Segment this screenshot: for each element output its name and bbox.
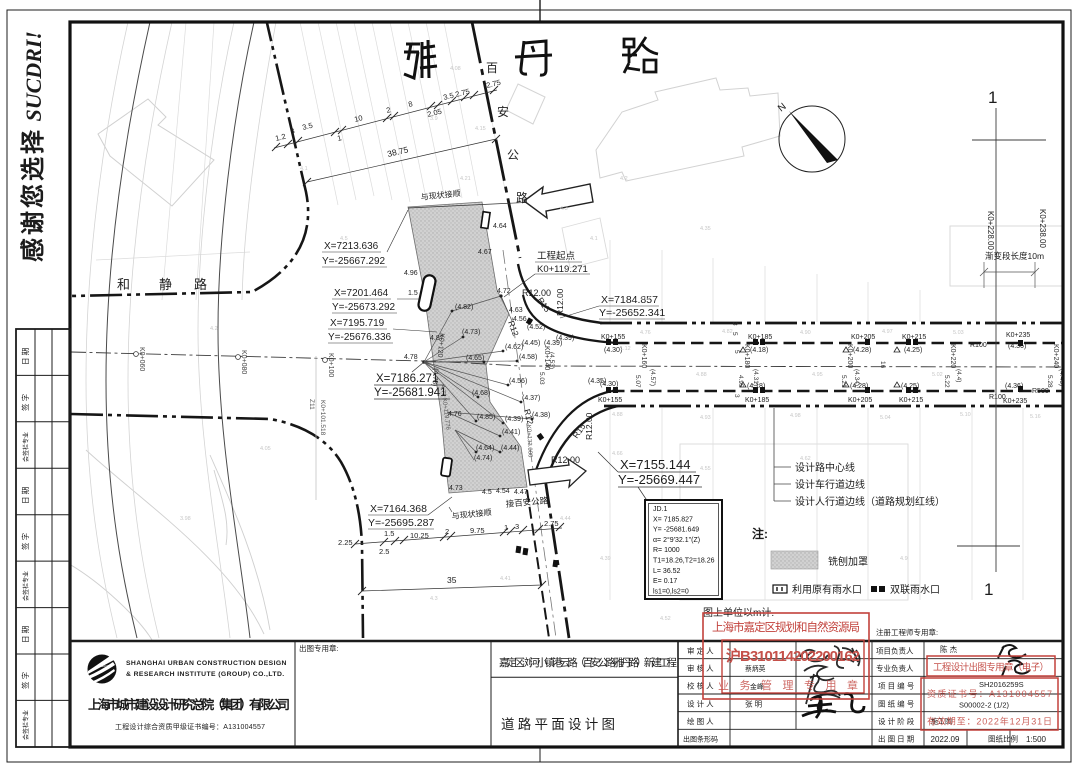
svg-text:4.62: 4.62 (800, 456, 811, 462)
svg-text:2.75: 2.75 (544, 519, 559, 528)
svg-text:5.04: 5.04 (880, 415, 891, 421)
svg-text:K0+155: K0+155 (598, 397, 622, 404)
svg-text:(4.36): (4.36) (1005, 383, 1023, 390)
svg-text:T1=18.26,T2=18.26: T1=18.26,T2=18.26 (653, 558, 715, 565)
svg-text:项 目 编 号: 项 目 编 号 (878, 681, 914, 691)
svg-text:4.76: 4.76 (640, 330, 651, 336)
svg-text:日 期: 日 期 (21, 487, 30, 504)
svg-text:(4.65): (4.65) (466, 355, 484, 362)
svg-text:Y=-25652.341: Y=-25652.341 (599, 307, 665, 319)
svg-text:校 核 人: 校 核 人 (687, 681, 714, 691)
svg-text:4.78: 4.78 (404, 354, 418, 361)
svg-text:4.44: 4.44 (560, 516, 571, 522)
svg-text:K0+100: K0+100 (327, 353, 334, 377)
svg-text:(4.34): (4.34) (853, 369, 860, 386)
svg-text:专业负责人: 专业负责人 (876, 663, 914, 673)
svg-text:(4.58): (4.58) (519, 354, 537, 361)
svg-text:SUCDRI: SUCDRI (101, 664, 113, 668)
svg-text:X=7201.464: X=7201.464 (334, 288, 389, 299)
svg-text:5.02: 5.02 (932, 372, 943, 378)
svg-text:4.95: 4.95 (812, 372, 823, 378)
svg-text:1.5: 1.5 (408, 290, 418, 297)
svg-text:5.03: 5.03 (538, 372, 545, 385)
svg-text:2: 2 (445, 527, 449, 536)
svg-text:4.15: 4.15 (475, 126, 486, 132)
svg-text:静: 静 (159, 277, 172, 292)
svg-text:5.03: 5.03 (953, 330, 964, 336)
svg-text:4.90: 4.90 (800, 330, 811, 336)
svg-text:α= 2°9'32.1"(Z): α= 2°9'32.1"(Z) (653, 536, 700, 544)
svg-text:(4.35): (4.35) (588, 378, 606, 385)
svg-text:4.2: 4.2 (620, 176, 628, 182)
svg-text:K0+205: K0+205 (848, 397, 872, 404)
svg-text:SHANGHAI URBAN CONSTRUCTION DE: SHANGHAI URBAN CONSTRUCTION DESIGN (126, 660, 287, 667)
svg-text:R= 1000: R= 1000 (653, 547, 680, 554)
svg-text:E= 0.17: E= 0.17 (653, 578, 677, 585)
svg-text:2022.09: 2022.09 (931, 735, 960, 744)
svg-text:4.3: 4.3 (430, 596, 438, 602)
svg-text:嘉定区浏河小镇港云路（百安公路-雅丹路）新建工程: 嘉定区浏河小镇港云路（百安公路-雅丹路）新建工程 (499, 656, 678, 669)
svg-text:4.54: 4.54 (496, 488, 510, 495)
svg-text:注册工程师专用章:: 注册工程师专用章: (876, 627, 938, 637)
svg-text:4.2: 4.2 (210, 326, 218, 332)
svg-text:安: 安 (497, 104, 509, 119)
svg-text:R12.00: R12.00 (522, 288, 551, 298)
svg-text:Y=-25681.941: Y=-25681.941 (374, 387, 447, 399)
svg-text:K0+228.00: K0+228.00 (986, 211, 995, 250)
svg-text:绘 图 人: 绘 图 人 (687, 716, 714, 726)
svg-text:(4.52): (4.52) (527, 324, 545, 331)
svg-text:X= 7185.827: X= 7185.827 (653, 516, 693, 523)
svg-text:(4.45): (4.45) (522, 340, 540, 347)
svg-text:工程起点: 工程起点 (537, 251, 576, 262)
svg-text:K0+235: K0+235 (1003, 398, 1027, 405)
svg-text:K0+101.518: K0+101.518 (319, 400, 326, 436)
svg-text:(4.64): (4.64) (476, 445, 494, 452)
svg-text:4.76: 4.76 (448, 411, 462, 418)
svg-text:1: 1 (984, 580, 993, 599)
svg-text:(4.37): (4.37) (522, 395, 540, 402)
svg-text:K0+200: K0+200 (846, 344, 853, 368)
svg-text:4.88: 4.88 (612, 412, 623, 418)
svg-text:日 期: 日 期 (21, 626, 30, 643)
svg-text:有效期至：2022年12月31日: 有效期至：2022年12月31日 (927, 716, 1052, 727)
svg-text:K0+180: K0+180 (743, 344, 750, 368)
svg-text:渐变段长度10m: 渐变段长度10m (985, 251, 1044, 261)
svg-text:4.64: 4.64 (493, 223, 507, 230)
svg-text:5.21: 5.21 (840, 375, 847, 388)
svg-text:注:: 注: (752, 526, 768, 541)
svg-text:Y=-25669.447: Y=-25669.447 (618, 472, 700, 487)
svg-text:4.05: 4.05 (260, 446, 271, 452)
svg-text:X=7186.271: X=7186.271 (376, 373, 438, 385)
svg-text:1: 1 (988, 88, 997, 107)
svg-text:K0+185: K0+185 (745, 397, 769, 404)
svg-text:35: 35 (447, 575, 457, 585)
svg-text:5.22: 5.22 (943, 375, 950, 388)
svg-text:(4.62): (4.62) (505, 344, 523, 351)
svg-text:X=7155.144: X=7155.144 (620, 457, 690, 472)
svg-text:3.98: 3.98 (180, 516, 191, 522)
svg-text:K0+235: K0+235 (1006, 332, 1030, 339)
svg-text:X=7164.368: X=7164.368 (370, 503, 427, 515)
svg-text:(4.44): (4.44) (501, 445, 519, 452)
svg-text:4.95: 4.95 (737, 375, 744, 388)
svg-text:(4.4): (4.4) (955, 369, 962, 382)
svg-text:4.47: 4.47 (514, 489, 528, 496)
svg-text:Y= -25681.649: Y= -25681.649 (653, 527, 699, 534)
svg-text:3.9: 3.9 (430, 116, 438, 122)
svg-text:出图条形码: 出图条形码 (683, 735, 718, 744)
svg-text:上海市嘉定区规划和自然资源局: 上海市嘉定区规划和自然资源局 (712, 620, 860, 634)
svg-text:审 核 人: 审 核 人 (687, 663, 714, 673)
svg-text:日 期: 日 期 (21, 348, 30, 365)
svg-text:签 字: 签 字 (20, 672, 30, 689)
svg-text:会签栏专业: 会签栏专业 (22, 432, 30, 462)
svg-text:4.63: 4.63 (509, 307, 523, 314)
svg-text:4.41: 4.41 (500, 576, 511, 582)
svg-text:4.5: 4.5 (340, 236, 348, 242)
svg-text:蔡炳英: 蔡炳英 (745, 664, 766, 673)
svg-text:R12.00: R12.00 (584, 412, 594, 440)
svg-text:K0+080: K0+080 (240, 350, 247, 374)
svg-text:签 字: 签 字 (20, 394, 30, 411)
svg-text:K0+220: K0+220 (949, 344, 956, 368)
svg-text:3: 3 (515, 522, 519, 531)
svg-text:(4.73): (4.73) (462, 329, 480, 336)
svg-text:铣刨加罩: 铣刨加罩 (828, 555, 868, 568)
svg-text:R100: R100 (989, 394, 1006, 401)
svg-text:5.16: 5.16 (1030, 414, 1041, 420)
svg-text:X=7195.719: X=7195.719 (330, 318, 385, 329)
svg-text:(4.57): (4.57) (649, 369, 656, 386)
svg-text:项目负责人: 项目负责人 (876, 646, 914, 656)
svg-text:(4.56): (4.56) (509, 378, 527, 385)
svg-text:4.55: 4.55 (700, 466, 711, 472)
svg-text:路: 路 (516, 190, 528, 205)
svg-text:K0+240: K0+240 (1052, 344, 1059, 368)
svg-text:4.21: 4.21 (460, 176, 471, 182)
svg-text:1: 1 (504, 523, 508, 532)
svg-text:4.66: 4.66 (612, 451, 623, 457)
svg-text:& RESEARCH INSTITUTE (GROUP) C: & RESEARCH INSTITUTE (GROUP) CO.,LTD. (126, 671, 285, 678)
svg-text:(4.39): (4.39) (556, 335, 574, 342)
svg-text:K0+215: K0+215 (899, 397, 923, 404)
svg-text:4.98: 4.98 (790, 413, 801, 419)
svg-text:5.10: 5.10 (960, 412, 971, 418)
svg-text:(4.82): (4.82) (455, 304, 473, 311)
svg-text:(4.25): (4.25) (901, 383, 919, 390)
svg-text:K0+119.271: K0+119.271 (537, 264, 588, 275)
svg-text:陈 杰: 陈 杰 (940, 644, 958, 654)
svg-text:2.25: 2.25 (338, 538, 353, 547)
svg-text:出 图 日 期: 出 图 日 期 (878, 734, 914, 744)
svg-text:L= 36.52: L= 36.52 (653, 568, 681, 575)
svg-text:4.1: 4.1 (300, 166, 308, 172)
svg-text:4.62: 4.62 (640, 296, 651, 302)
svg-text:5.28: 5.28 (1046, 375, 1053, 388)
svg-text:K0+060: K0+060 (138, 347, 145, 371)
svg-text:K0+215: K0+215 (902, 334, 926, 341)
svg-text:双联雨水口: 双联雨水口 (890, 584, 940, 596)
svg-text:16: 16 (879, 361, 886, 369)
svg-text:K0+238.00: K0+238.00 (1038, 209, 1047, 248)
svg-text:4.9: 4.9 (900, 556, 908, 562)
svg-text:1:500: 1:500 (1026, 735, 1047, 744)
svg-text:K0+155: K0+155 (601, 334, 625, 341)
svg-text:4.3: 4.3 (560, 206, 568, 212)
svg-text:(4.36): (4.36) (1008, 343, 1026, 350)
svg-text:工程设计出图专用章（电子）: 工程设计出图专用章（电子） (933, 662, 1049, 674)
svg-text:会签栏专业: 会签栏专业 (22, 710, 30, 740)
svg-text:Y=-25695.287: Y=-25695.287 (368, 517, 434, 529)
svg-text:设计路中心线: 设计路中心线 (795, 461, 855, 474)
svg-text:设 计 阶 段: 设 计 阶 段 (878, 716, 915, 726)
svg-text:沪B310114202200162: 沪B310114202200162 (726, 647, 860, 665)
svg-text:JD.1: JD.1 (653, 506, 668, 513)
svg-text:4.1: 4.1 (590, 236, 598, 242)
svg-text:4.97: 4.97 (882, 329, 893, 335)
svg-text:上海市城市建设设计研究总院（集团）有限公司: 上海市城市建设设计研究总院（集团）有限公司 (88, 697, 290, 712)
svg-text:Z11: Z11 (308, 399, 315, 410)
svg-text:K0+205: K0+205 (851, 334, 875, 341)
svg-text:4.73: 4.73 (449, 485, 463, 492)
svg-text:4.88: 4.88 (696, 372, 707, 378)
svg-text:(4.68): (4.68) (472, 390, 490, 397)
svg-text:R100: R100 (970, 342, 987, 349)
svg-text:2.5: 2.5 (379, 547, 389, 556)
svg-text:S00002-2 (1/2): S00002-2 (1/2) (959, 701, 1010, 710)
svg-text:1.12: 1.12 (620, 346, 631, 352)
svg-text:K0+160: K0+160 (640, 344, 647, 368)
svg-text:10.25: 10.25 (410, 531, 429, 540)
svg-text:工程设计综合资质甲级证书编号：A131004557: 工程设计综合资质甲级证书编号：A131004557 (115, 722, 265, 731)
svg-text:设计人行道边线（道路规划红线）: 设计人行道边线（道路规划红线） (795, 495, 945, 508)
svg-text:5: 5 (733, 350, 740, 354)
svg-text:Y=-25673.292: Y=-25673.292 (332, 302, 396, 313)
svg-text:3: 3 (731, 322, 738, 326)
svg-text:路: 路 (194, 277, 207, 292)
svg-text:R12.00: R12.00 (555, 288, 565, 316)
svg-text:9.75: 9.75 (470, 526, 485, 535)
svg-text:4.39: 4.39 (600, 556, 611, 562)
svg-text:(4.74): (4.74) (474, 455, 492, 462)
svg-text:设计车行道边线: 设计车行道边线 (795, 478, 865, 491)
svg-text:图纸比例: 图纸比例 (988, 734, 1018, 744)
svg-text:Y=-25676.336: Y=-25676.336 (328, 332, 392, 343)
svg-text:(4.28): (4.28) (853, 347, 871, 354)
svg-text:(4.18): (4.18) (750, 347, 768, 354)
svg-text:和: 和 (117, 277, 130, 292)
svg-text:出图专用章:: 出图专用章: (299, 643, 339, 653)
svg-text:4.82: 4.82 (722, 329, 733, 335)
svg-text:Y=-25667.292: Y=-25667.292 (322, 256, 386, 267)
svg-text:设 计 人: 设 计 人 (687, 698, 714, 708)
svg-text:4.93: 4.93 (700, 415, 711, 421)
svg-text:4.35: 4.35 (700, 226, 711, 232)
svg-text:(4.25): (4.25) (904, 347, 922, 354)
svg-text:(4.31): (4.31) (752, 369, 759, 386)
svg-text:审 定 人: 审 定 人 (687, 646, 714, 656)
svg-text:道路平面设计图: 道路平面设计图 (501, 717, 615, 732)
svg-text:百: 百 (486, 61, 498, 75)
svg-text:张 明: 张 明 (745, 700, 762, 709)
svg-text:4.96: 4.96 (404, 270, 418, 277)
svg-text:(4.85): (4.85) (477, 414, 495, 421)
svg-text:X=7213.636: X=7213.636 (324, 241, 379, 252)
svg-text:4.5: 4.5 (482, 489, 492, 496)
svg-text:签 字: 签 字 (20, 533, 30, 550)
svg-text:4.08: 4.08 (450, 66, 461, 72)
svg-text:会签栏专业: 会签栏专业 (22, 571, 30, 601)
svg-text:(4.41): (4.41) (502, 429, 520, 436)
svg-text:(4.39): (4.39) (505, 416, 523, 423)
svg-text:公: 公 (507, 148, 519, 162)
svg-text:K0+185: K0+185 (748, 334, 772, 341)
svg-text:4.52: 4.52 (660, 616, 671, 622)
svg-text:(4.53): (4.53) (548, 352, 555, 369)
svg-text:R500: R500 (1032, 388, 1049, 395)
svg-text:ls1=0,ls2=0: ls1=0,ls2=0 (653, 588, 689, 595)
svg-text:SH2016259S: SH2016259S (979, 680, 1024, 689)
svg-text:感谢您选择 SUCDRI!: 感谢您选择 SUCDRI! (19, 31, 47, 262)
svg-text:4.72: 4.72 (497, 288, 511, 295)
svg-text:5.07: 5.07 (634, 375, 641, 388)
svg-text:3: 3 (733, 394, 740, 398)
svg-text:利用原有雨水口: 利用原有雨水口 (792, 583, 862, 596)
svg-text:4.67: 4.67 (478, 249, 492, 256)
svg-text:图 纸 编 号: 图 纸 编 号 (878, 698, 914, 708)
svg-text:1.5: 1.5 (384, 529, 394, 538)
